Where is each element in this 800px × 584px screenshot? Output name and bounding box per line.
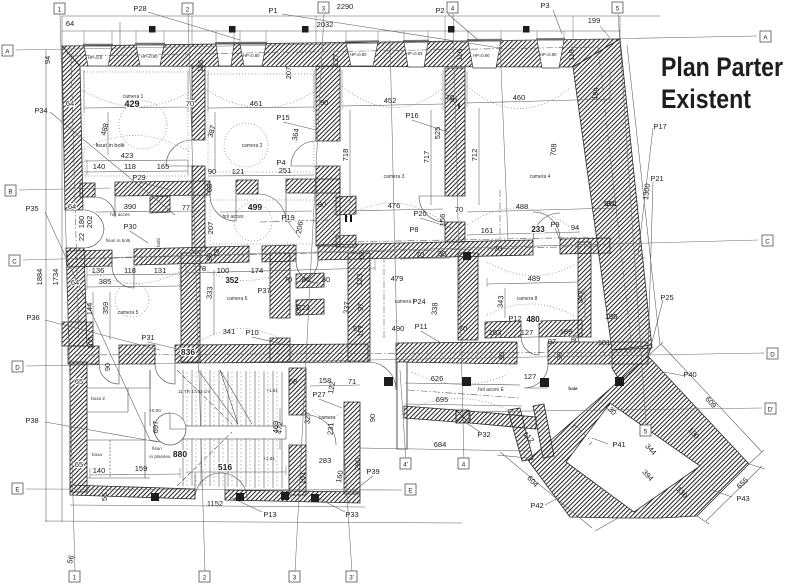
svg-text:P10: P10 bbox=[245, 328, 258, 337]
svg-text:64: 64 bbox=[66, 19, 74, 28]
svg-text:+1.81: +1.81 bbox=[263, 456, 275, 461]
svg-text:P38: P38 bbox=[25, 416, 38, 425]
svg-text:P32: P32 bbox=[477, 430, 490, 439]
svg-text:baie: baie bbox=[568, 386, 578, 391]
svg-text:499: 499 bbox=[248, 202, 262, 212]
svg-text:P41: P41 bbox=[612, 440, 625, 449]
svg-text:P35: P35 bbox=[25, 204, 38, 213]
svg-text:HP=0.80: HP=0.80 bbox=[243, 53, 260, 58]
svg-text:camera 6: camera 6 bbox=[227, 296, 248, 302]
svg-text:342: 342 bbox=[575, 290, 585, 303]
svg-text:P20: P20 bbox=[413, 209, 426, 218]
svg-text:338: 338 bbox=[429, 302, 439, 315]
svg-text:E: E bbox=[15, 487, 19, 494]
svg-text:90: 90 bbox=[368, 414, 377, 422]
svg-text:4': 4' bbox=[403, 462, 408, 469]
svg-text:708: 708 bbox=[548, 143, 558, 156]
svg-text:C: C bbox=[12, 259, 17, 266]
svg-text:4: 4 bbox=[451, 6, 455, 13]
svg-text:880: 880 bbox=[173, 449, 187, 459]
svg-text:58: 58 bbox=[205, 184, 214, 192]
svg-text:121: 121 bbox=[232, 167, 245, 176]
svg-text:479: 479 bbox=[391, 274, 404, 283]
svg-text:camera 2: camera 2 bbox=[242, 143, 263, 149]
svg-text:70: 70 bbox=[186, 99, 194, 108]
svg-text:90: 90 bbox=[555, 352, 564, 360]
svg-text:camera: camera bbox=[319, 415, 336, 421]
svg-text:in planseu: in planseu bbox=[150, 454, 171, 459]
svg-text:P40: P40 bbox=[683, 370, 696, 379]
svg-text:64: 64 bbox=[66, 99, 74, 108]
svg-text:78: 78 bbox=[212, 249, 221, 257]
svg-text:P13: P13 bbox=[263, 510, 276, 519]
svg-text:343: 343 bbox=[495, 295, 505, 308]
svg-text:70: 70 bbox=[416, 250, 424, 259]
svg-text:P19: P19 bbox=[281, 213, 294, 222]
svg-text:341: 341 bbox=[223, 327, 236, 336]
svg-text:337: 337 bbox=[341, 301, 351, 314]
svg-text:boxa 2: boxa 2 bbox=[91, 396, 105, 401]
svg-text:327: 327 bbox=[293, 303, 303, 316]
svg-text:123: 123 bbox=[354, 273, 364, 286]
svg-text:C: C bbox=[765, 239, 770, 246]
svg-text:B: B bbox=[8, 189, 12, 196]
svg-text:fisuri in bolti: fisuri in bolti bbox=[106, 238, 130, 243]
svg-text:P3: P3 bbox=[540, 1, 549, 10]
svg-text:4: 4 bbox=[462, 462, 466, 469]
svg-text:71: 71 bbox=[348, 377, 356, 386]
svg-text:P8: P8 bbox=[409, 225, 418, 234]
svg-text:77: 77 bbox=[182, 203, 190, 212]
svg-text:P33: P33 bbox=[345, 510, 358, 519]
svg-text:94: 94 bbox=[571, 223, 579, 232]
svg-text:P15: P15 bbox=[276, 113, 289, 122]
svg-text:1734: 1734 bbox=[51, 269, 60, 286]
svg-text:195: 195 bbox=[605, 312, 618, 321]
svg-text:327: 327 bbox=[302, 411, 312, 424]
svg-text:5: 5 bbox=[644, 429, 648, 436]
svg-text:684: 684 bbox=[434, 440, 447, 449]
svg-text:camera 3: camera 3 bbox=[384, 174, 405, 180]
svg-text:488: 488 bbox=[516, 202, 529, 211]
svg-text:118: 118 bbox=[124, 266, 136, 275]
svg-text:202: 202 bbox=[85, 216, 94, 229]
svg-text:P25: P25 bbox=[660, 293, 673, 302]
svg-text:480: 480 bbox=[526, 315, 540, 324]
svg-text:P27: P27 bbox=[312, 390, 325, 399]
svg-text:70: 70 bbox=[459, 324, 467, 333]
svg-text:525: 525 bbox=[433, 127, 442, 140]
svg-text:199: 199 bbox=[588, 16, 601, 25]
svg-text:836: 836 bbox=[181, 347, 195, 357]
svg-text:22: 22 bbox=[77, 233, 86, 241]
svg-text:70: 70 bbox=[446, 93, 454, 102]
svg-text:697: 697 bbox=[151, 421, 160, 434]
svg-text:D: D bbox=[770, 352, 775, 359]
svg-text:90: 90 bbox=[208, 167, 216, 176]
svg-text:P17: P17 bbox=[653, 122, 666, 131]
svg-text:hol acces E: hol acces E bbox=[478, 387, 505, 393]
svg-text:+1.81: +1.81 bbox=[266, 388, 278, 393]
svg-text:70: 70 bbox=[455, 205, 463, 214]
svg-text:163: 163 bbox=[489, 328, 502, 337]
svg-text:385: 385 bbox=[99, 277, 112, 286]
svg-text:HP=0.80: HP=0.80 bbox=[540, 52, 557, 57]
svg-text:80: 80 bbox=[322, 275, 330, 284]
svg-text:207: 207 bbox=[206, 222, 215, 235]
svg-text:hol acces: hol acces bbox=[110, 212, 130, 217]
svg-text:100: 100 bbox=[217, 266, 230, 275]
svg-text:233: 233 bbox=[531, 225, 545, 234]
svg-text:186: 186 bbox=[196, 60, 205, 73]
svg-text:+0.00: +0.00 bbox=[149, 408, 161, 413]
svg-text:1884: 1884 bbox=[35, 269, 44, 286]
svg-text:251: 251 bbox=[279, 166, 292, 175]
svg-text:105: 105 bbox=[86, 337, 95, 350]
svg-text:P12: P12 bbox=[508, 314, 521, 323]
svg-text:90: 90 bbox=[497, 352, 506, 360]
svg-text:136: 136 bbox=[92, 266, 105, 275]
svg-text:P21: P21 bbox=[650, 174, 663, 183]
svg-text:P28: P28 bbox=[133, 4, 146, 13]
svg-text:490: 490 bbox=[392, 324, 405, 333]
svg-text:80: 80 bbox=[571, 335, 579, 344]
svg-text:333: 333 bbox=[204, 286, 214, 299]
svg-text:80: 80 bbox=[318, 200, 326, 209]
svg-text:64: 64 bbox=[71, 278, 79, 287]
svg-text:D: D bbox=[15, 365, 20, 372]
svg-text:5: 5 bbox=[616, 6, 620, 13]
svg-text:156: 156 bbox=[438, 214, 447, 227]
svg-text:3': 3' bbox=[349, 575, 354, 582]
svg-text:3: 3 bbox=[322, 6, 326, 13]
svg-text:P2: P2 bbox=[435, 6, 444, 15]
svg-text:P36: P36 bbox=[26, 313, 39, 322]
svg-text:159: 159 bbox=[135, 464, 148, 473]
svg-text:626: 626 bbox=[431, 374, 444, 383]
svg-text:11 TR 17/33 cm: 11 TR 17/33 cm bbox=[178, 389, 210, 394]
svg-text:90: 90 bbox=[103, 363, 112, 371]
svg-text:116: 116 bbox=[455, 49, 464, 61]
svg-text:fisuri: fisuri bbox=[152, 446, 162, 451]
svg-text:hol acces: hol acces bbox=[222, 214, 244, 220]
svg-text:94: 94 bbox=[43, 56, 52, 64]
svg-text:camera 4: camera 4 bbox=[530, 174, 551, 180]
svg-text:231: 231 bbox=[325, 422, 335, 435]
svg-text:181: 181 bbox=[605, 199, 618, 208]
svg-text:boxa: boxa bbox=[92, 452, 102, 457]
svg-text:86: 86 bbox=[302, 275, 310, 284]
svg-text:717: 717 bbox=[422, 151, 431, 164]
svg-text:140: 140 bbox=[93, 466, 106, 475]
svg-text:P39: P39 bbox=[366, 467, 379, 476]
svg-text:2032: 2032 bbox=[317, 20, 334, 29]
svg-text:camera 7: camera 7 bbox=[395, 299, 416, 305]
svg-text:472: 472 bbox=[274, 421, 284, 434]
svg-text:P29: P29 bbox=[132, 173, 145, 182]
svg-text:D': D' bbox=[768, 407, 774, 414]
svg-text:423: 423 bbox=[121, 151, 134, 160]
svg-text:489: 489 bbox=[528, 274, 541, 283]
svg-text:78: 78 bbox=[198, 264, 206, 273]
svg-text:118: 118 bbox=[567, 49, 576, 61]
svg-text:65: 65 bbox=[75, 377, 83, 386]
svg-text:131: 131 bbox=[154, 266, 167, 275]
svg-text:Plan Parter: Plan Parter bbox=[661, 52, 783, 82]
svg-text:118: 118 bbox=[124, 162, 136, 171]
svg-text:3: 3 bbox=[293, 575, 297, 582]
svg-text:1: 1 bbox=[73, 575, 77, 582]
svg-text:in bolti: in bolti bbox=[156, 238, 161, 251]
svg-text:283: 283 bbox=[319, 456, 332, 465]
svg-text:P37: P37 bbox=[257, 286, 270, 295]
svg-text:429: 429 bbox=[124, 99, 139, 109]
svg-text:90: 90 bbox=[320, 98, 328, 107]
svg-text:461: 461 bbox=[250, 99, 263, 108]
svg-text:476: 476 bbox=[388, 201, 401, 210]
svg-text:2: 2 bbox=[203, 575, 207, 582]
svg-text:280: 280 bbox=[353, 458, 362, 471]
svg-text:207: 207 bbox=[284, 67, 293, 80]
svg-text:P43: P43 bbox=[736, 494, 749, 503]
svg-text:452: 452 bbox=[384, 96, 397, 105]
svg-text:64: 64 bbox=[68, 202, 76, 211]
svg-text:80: 80 bbox=[438, 249, 446, 258]
svg-text:695: 695 bbox=[436, 395, 449, 404]
svg-text:P34: P34 bbox=[34, 106, 47, 115]
svg-text:161: 161 bbox=[481, 226, 494, 235]
svg-text:352: 352 bbox=[225, 276, 239, 285]
svg-text:712: 712 bbox=[470, 149, 479, 162]
svg-text:P1: P1 bbox=[268, 6, 277, 15]
svg-text:P9: P9 bbox=[550, 220, 559, 229]
svg-text:127: 127 bbox=[524, 372, 537, 381]
svg-text:HP=0.80: HP=0.80 bbox=[350, 52, 367, 57]
svg-text:camera 8: camera 8 bbox=[517, 296, 538, 302]
svg-text:97: 97 bbox=[548, 337, 556, 346]
svg-text:56: 56 bbox=[100, 493, 109, 501]
svg-text:E: E bbox=[408, 488, 412, 495]
svg-text:117: 117 bbox=[356, 325, 365, 337]
svg-text:68: 68 bbox=[289, 377, 297, 386]
svg-text:181: 181 bbox=[598, 338, 611, 347]
svg-text:97: 97 bbox=[356, 303, 365, 311]
svg-text:359: 359 bbox=[101, 302, 110, 315]
svg-text:718: 718 bbox=[341, 149, 350, 162]
svg-text:P30: P30 bbox=[123, 222, 136, 231]
svg-text:P16: P16 bbox=[405, 111, 418, 120]
svg-text:fisuri in bolti: fisuri in bolti bbox=[95, 143, 124, 149]
svg-text:P42: P42 bbox=[530, 501, 543, 510]
svg-text:460: 460 bbox=[513, 93, 526, 102]
svg-text:127: 127 bbox=[331, 54, 340, 67]
svg-text:62: 62 bbox=[357, 251, 366, 259]
svg-text:HP=0.83: HP=0.83 bbox=[406, 51, 423, 56]
svg-text:HP=0.80: HP=0.80 bbox=[141, 54, 158, 59]
svg-text:P31: P31 bbox=[141, 333, 154, 342]
svg-text:HP=0.8: HP=0.8 bbox=[88, 55, 103, 60]
svg-text:390: 390 bbox=[124, 202, 137, 211]
svg-text:2: 2 bbox=[186, 7, 190, 14]
svg-text:70: 70 bbox=[284, 275, 292, 284]
svg-text:65: 65 bbox=[75, 460, 83, 469]
svg-text:P11: P11 bbox=[415, 322, 428, 331]
svg-text:174: 174 bbox=[251, 266, 264, 275]
svg-text:1152: 1152 bbox=[207, 499, 223, 508]
svg-text:516: 516 bbox=[218, 462, 232, 472]
svg-text:Existent: Existent bbox=[661, 84, 751, 114]
svg-text:1: 1 bbox=[58, 7, 62, 14]
svg-text:70: 70 bbox=[494, 244, 502, 253]
svg-text:camera 5: camera 5 bbox=[118, 310, 139, 316]
svg-text:144: 144 bbox=[85, 303, 94, 316]
svg-text:127: 127 bbox=[521, 328, 534, 337]
svg-text:HP=0.90: HP=0.90 bbox=[473, 53, 490, 58]
svg-text:165: 165 bbox=[157, 162, 170, 171]
svg-text:2290: 2290 bbox=[337, 2, 354, 11]
svg-text:140: 140 bbox=[93, 162, 106, 171]
svg-text:161: 161 bbox=[298, 472, 307, 485]
